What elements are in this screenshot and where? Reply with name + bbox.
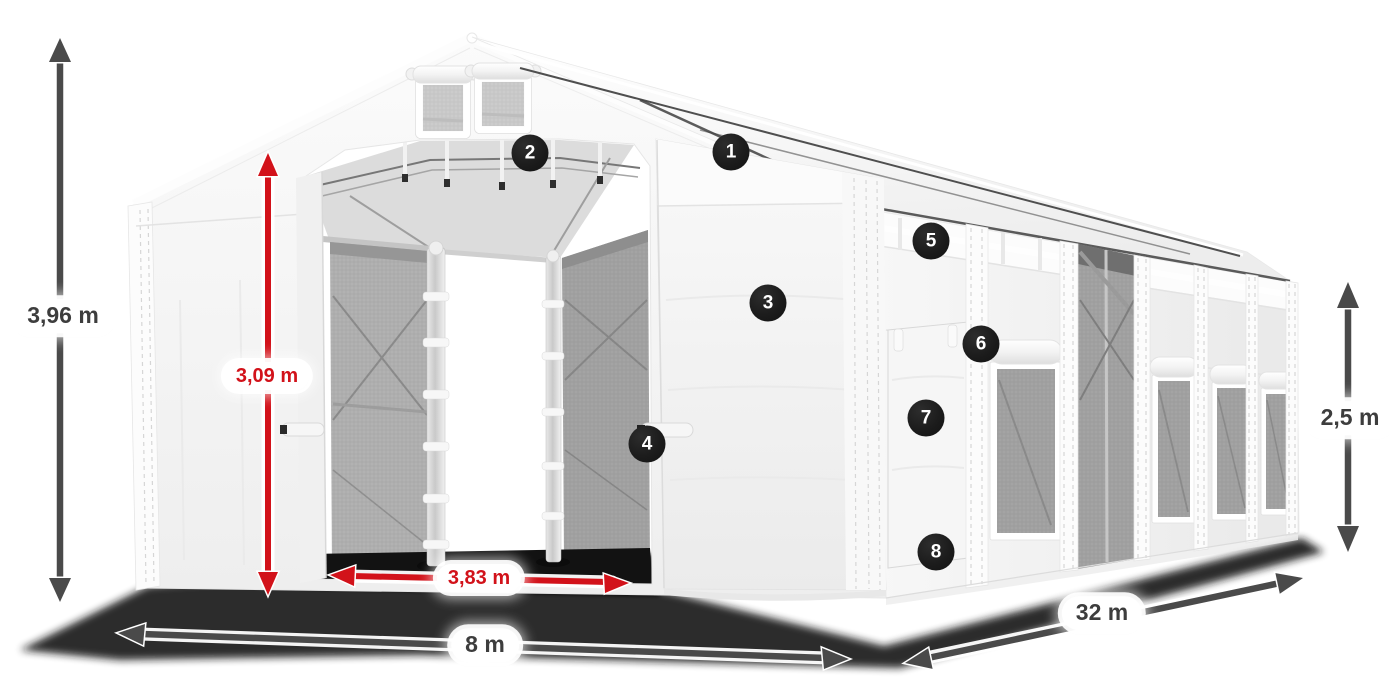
dim-label-entrance-width: 3,83 m <box>437 564 521 592</box>
feature-marker-1[interactable]: 1 <box>713 134 750 171</box>
feature-marker-4[interactable]: 4 <box>629 426 666 463</box>
feature-marker-6[interactable]: 6 <box>963 326 1000 363</box>
dim-label-front-width: 8 m <box>451 628 519 662</box>
gable-vent-right <box>465 63 541 134</box>
side-window-1 <box>985 340 1067 540</box>
side-window-2 <box>1150 357 1198 523</box>
side-door <box>888 322 968 568</box>
dim-label-side-length: 32 m <box>1062 596 1142 630</box>
feature-marker-7[interactable]: 7 <box>908 400 945 437</box>
dim-label-side-height: 2,5 m <box>1307 401 1394 435</box>
front-door-right <box>637 139 886 601</box>
tent-illustration <box>0 0 1400 700</box>
side-entrance-opening <box>1078 244 1136 569</box>
feature-marker-5[interactable]: 5 <box>913 223 950 260</box>
entrance-post-left <box>423 241 449 566</box>
feature-marker-8[interactable]: 8 <box>918 534 955 571</box>
dim-label-entrance-height: 3,09 m <box>225 362 309 390</box>
tent-dimension-diagram: 3,96 m 3,09 m 3,83 m 8 m 32 m 2,5 m 1 2 … <box>0 0 1400 700</box>
feature-marker-3[interactable]: 3 <box>750 285 787 322</box>
feature-marker-2[interactable]: 2 <box>512 135 549 172</box>
partition-post <box>542 250 564 562</box>
tent-interior <box>306 140 652 584</box>
dim-label-total-height: 3,96 m <box>13 299 113 333</box>
